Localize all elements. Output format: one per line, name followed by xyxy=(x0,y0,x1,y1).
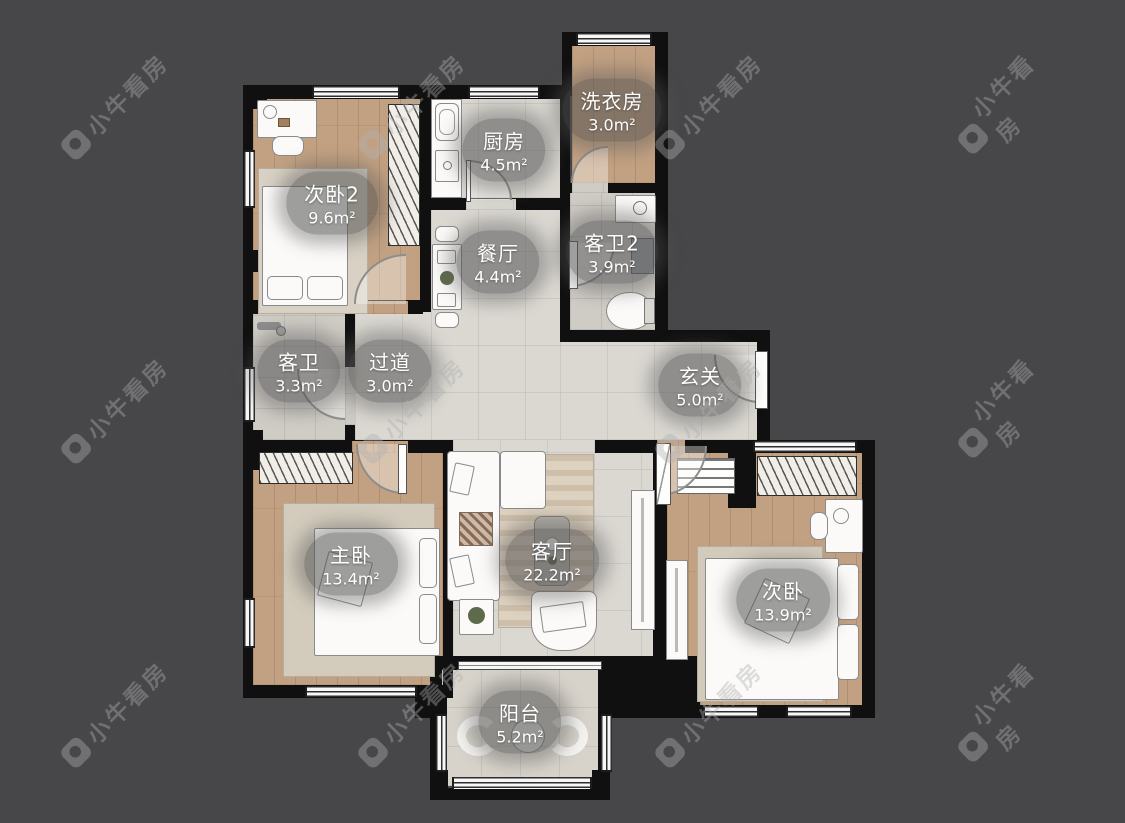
label-hallway: 过道 3.0m² xyxy=(348,340,431,403)
room-area: 4.4m² xyxy=(474,268,521,287)
window-bedroom3-top xyxy=(753,441,857,452)
sliding-door-balcony xyxy=(458,661,602,670)
room-area: 3.0m² xyxy=(588,116,635,135)
window-bedroom2-top xyxy=(312,86,400,98)
dining-chair-bottom xyxy=(435,312,459,328)
sofa-chaise xyxy=(500,451,546,509)
room-name: 客卫 xyxy=(278,347,320,376)
room-name: 主卧 xyxy=(330,540,372,569)
wardrobe-master xyxy=(259,452,353,484)
wardrobe-bedroom2 xyxy=(388,104,420,246)
pillow-bedroom2-b xyxy=(307,276,343,300)
opening-kitchen-door xyxy=(466,199,516,210)
bath2-toilet-tank xyxy=(644,298,655,324)
room-area: 22.2m² xyxy=(523,566,581,585)
room-area: 3.9m² xyxy=(588,258,635,277)
label-balcony: 阳台 5.2m² xyxy=(478,691,561,754)
watermark: 小牛看房 xyxy=(940,647,1072,779)
watermark-text: 小牛看房 xyxy=(963,647,1073,757)
room-name: 阳台 xyxy=(499,698,541,727)
room-name: 次卧2 xyxy=(304,179,360,208)
watermark-text: 小牛看房 xyxy=(963,343,1073,453)
wall-bedroom3-right xyxy=(862,440,875,718)
watermark-logo-icon xyxy=(58,735,93,770)
window-kitchen-top xyxy=(468,86,540,98)
room-area: 13.4m² xyxy=(322,570,380,589)
desk-lamp-bedroom3 xyxy=(833,508,849,524)
wall-chunk-southeast xyxy=(610,656,700,718)
door-leaf-bedroom3 xyxy=(656,443,671,505)
bath2-faucet xyxy=(633,201,647,215)
pillow-bedroom3-a xyxy=(837,564,859,620)
chair-bedroom3 xyxy=(810,512,828,540)
guestbath-shower-head xyxy=(276,326,286,336)
wall-balcony-corner-right xyxy=(592,770,610,800)
label-entry: 玄关 5.0m² xyxy=(658,354,741,417)
room-area: 5.2m² xyxy=(496,728,543,747)
cabinet-bedroom3-line xyxy=(675,568,678,652)
wardrobe-bedroom3 xyxy=(757,456,857,496)
watermark-text: 小牛看房 xyxy=(78,45,176,143)
room-name: 玄关 xyxy=(679,361,721,390)
window-laundry-top xyxy=(576,33,652,45)
label-bedroom2: 次卧2 9.6m² xyxy=(286,172,378,235)
room-area: 13.9m² xyxy=(754,606,812,625)
watermark-logo-icon xyxy=(58,431,93,466)
wall-entry-top xyxy=(560,330,770,342)
window-master-left xyxy=(244,598,255,648)
opening-laundry-door xyxy=(572,183,608,193)
label-living: 客厅 22.2m² xyxy=(505,529,599,592)
room-name: 洗衣房 xyxy=(581,86,644,115)
watermark: 小牛看房 xyxy=(55,653,175,773)
room-name: 厨房 xyxy=(483,126,525,155)
watermark: 小牛看房 xyxy=(55,45,175,165)
room-name: 过道 xyxy=(369,347,411,376)
chair-bedroom2 xyxy=(272,136,304,156)
room-area: 4.5m² xyxy=(480,156,527,175)
window-balcony-right xyxy=(601,714,612,772)
sofa-throw-blanket xyxy=(459,512,493,546)
desk-lamp-bedroom2 xyxy=(263,105,277,119)
watermark-logo-icon xyxy=(955,425,990,460)
watermark-logo-icon xyxy=(955,729,990,764)
dining-plate-a xyxy=(437,250,456,264)
tv-cabinet-living-line xyxy=(641,498,644,622)
label-guestbath: 客卫 3.3m² xyxy=(257,340,340,403)
dining-chair-top xyxy=(435,226,459,242)
kitchen-stove-burner xyxy=(443,161,452,170)
wall-hall-bottom-a xyxy=(595,440,657,453)
wall-master-left xyxy=(243,432,253,698)
label-dining: 餐厅 4.4m² xyxy=(456,231,539,294)
dining-plate-b xyxy=(437,293,456,307)
room-name: 客厅 xyxy=(531,536,573,565)
label-bath2: 客卫2 3.9m² xyxy=(566,221,658,284)
pillow-master-b xyxy=(419,594,437,644)
window-bedroom3-bottom-left xyxy=(703,706,759,717)
door-leaf-entry xyxy=(755,351,768,409)
watermark-logo-icon xyxy=(355,735,390,770)
window-bedroom3-bottom-right xyxy=(786,706,852,717)
room-area: 9.6m² xyxy=(308,209,355,228)
window-balcony-left xyxy=(436,714,447,772)
window-guestbath-left xyxy=(244,367,255,422)
watermark-logo-icon xyxy=(955,121,990,156)
watermark: 小牛看房 xyxy=(940,39,1072,171)
desk-item-bedroom2 xyxy=(278,118,290,127)
label-master: 主卧 13.4m² xyxy=(304,533,398,596)
room-area: 3.3m² xyxy=(275,377,322,396)
wall-balcony-corner-left xyxy=(430,770,448,800)
window-balcony-bottom xyxy=(452,777,592,789)
label-kitchen: 厨房 4.5m² xyxy=(462,119,545,182)
watermark-text: 小牛看房 xyxy=(78,653,176,751)
watermark-text: 小牛看房 xyxy=(672,45,770,143)
room-name: 客卫2 xyxy=(584,228,640,257)
door-leaf-master xyxy=(398,444,407,494)
room-area: 5.0m² xyxy=(676,391,723,410)
watermark: 小牛看房 xyxy=(55,349,175,469)
label-bedroom3: 次卧 13.9m² xyxy=(736,569,830,632)
label-laundry: 洗衣房 3.0m² xyxy=(563,79,662,142)
watermark: 小牛看房 xyxy=(940,343,1072,475)
watermark-text: 小牛看房 xyxy=(963,39,1073,149)
room-area: 3.0m² xyxy=(366,377,413,396)
window-bedroom2-left xyxy=(244,150,255,208)
kitchen-sink-basin xyxy=(439,109,455,135)
watermark-text: 小牛看房 xyxy=(78,349,176,447)
watermark-logo-icon xyxy=(652,735,687,770)
pillow-bedroom2-a xyxy=(267,276,303,300)
watermark-logo-icon xyxy=(58,127,93,162)
pillow-bedroom3-b xyxy=(837,624,859,680)
side-table-plant xyxy=(468,607,485,624)
wall-balcony-bottom xyxy=(430,788,610,800)
window-master-bottom xyxy=(305,686,417,697)
room-name: 次卧 xyxy=(762,576,804,605)
floorplan-canvas: 次卧2 9.6m² 厨房 4.5m² 洗衣房 3.0m² 餐厅 4.4m² 客卫… xyxy=(0,0,1125,823)
desk-bedroom3 xyxy=(825,499,863,553)
dining-plant xyxy=(440,271,454,285)
pillow-master-a xyxy=(419,538,437,588)
room-name: 餐厅 xyxy=(477,238,519,267)
